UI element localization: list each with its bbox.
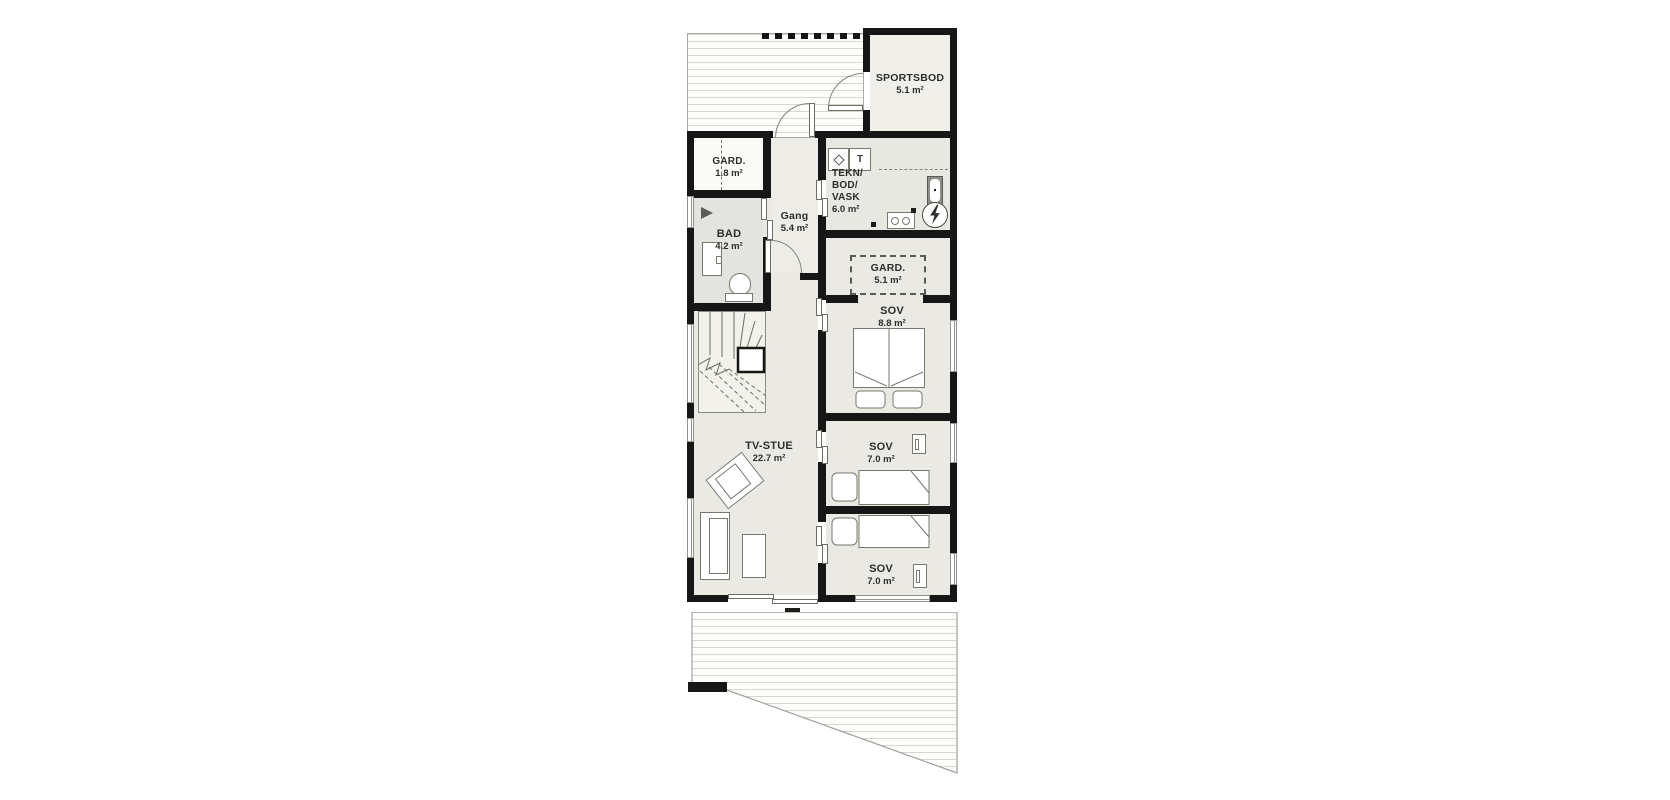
wall — [950, 463, 957, 553]
window — [687, 418, 694, 442]
toilet-icon — [729, 273, 751, 295]
wall — [818, 462, 826, 522]
sofa-icon — [700, 512, 730, 580]
window — [855, 595, 930, 602]
wall — [863, 28, 957, 35]
window — [950, 423, 957, 463]
wall — [818, 595, 855, 602]
room-label-sov-2: SOV 7.0 m² — [836, 563, 926, 588]
wall — [950, 372, 957, 423]
staircase — [698, 311, 766, 413]
dryer-label: T — [857, 154, 863, 165]
wall — [863, 110, 870, 137]
room-label-sov-1: SOV 7.0 m² — [836, 441, 926, 466]
wall — [687, 303, 771, 311]
electrical-panel-icon — [922, 202, 948, 228]
sliding-door-panel — [822, 446, 828, 464]
sliding-door-panel — [816, 526, 822, 546]
room-label-gard-entry: GARD. 1.8 m² — [695, 156, 763, 179]
coffee-table-icon — [742, 534, 766, 578]
floor-drain — [871, 222, 876, 227]
sliding-door-panel — [816, 180, 822, 200]
patio-sliding-door-panel — [772, 599, 818, 604]
wall — [800, 273, 818, 280]
deck-wall-stub — [688, 682, 727, 692]
wall — [863, 28, 870, 72]
wall — [818, 215, 826, 300]
wall — [687, 131, 694, 196]
sliding-door-panel — [761, 198, 767, 220]
floor-plan-canvas: T — [0, 0, 1670, 800]
window — [687, 498, 694, 558]
single-bed-icon — [830, 470, 930, 505]
patio-sliding-door-panel — [728, 594, 774, 599]
sliding-door-panel — [822, 198, 828, 217]
room-label-tv-stue: TV-STUE 22.7 m² — [719, 440, 819, 465]
window — [687, 196, 694, 228]
wall — [826, 295, 858, 303]
wall — [950, 585, 957, 602]
wall — [687, 442, 694, 498]
room-label-bad: BAD 4.2 m² — [695, 228, 763, 253]
wall — [763, 138, 771, 198]
pergola-dashed-marker — [762, 33, 864, 39]
window — [950, 553, 957, 585]
wall — [815, 131, 957, 138]
room-label-tekn: TEKN/ BOD/ VASK 6.0 m² — [832, 168, 912, 215]
wall — [687, 558, 694, 602]
hall-door-leaf — [765, 240, 771, 273]
wall — [687, 131, 773, 138]
door-threshold-marker — [785, 608, 800, 612]
room-label-sportsbod: SPORTSBOD 5.1 m² — [870, 72, 950, 96]
room-label-gang: Gang 5.4 m² — [771, 210, 818, 234]
single-bed-icon — [830, 515, 930, 548]
floor-plan: T — [687, 28, 963, 800]
wall — [818, 563, 826, 595]
wall — [687, 403, 694, 418]
wall — [818, 230, 950, 238]
wall — [950, 28, 957, 320]
entry-door-leaf — [809, 103, 815, 137]
room-label-gard-sov: GARD. 5.1 m² — [850, 262, 926, 286]
toilet-tank — [725, 293, 753, 302]
window — [950, 320, 957, 372]
stair-core — [738, 348, 764, 372]
wall — [694, 190, 771, 198]
water-heater-icon — [927, 176, 943, 205]
double-bed-icon — [853, 328, 925, 412]
sportsbod-door-leaf — [828, 105, 863, 111]
sliding-door-panel — [822, 314, 828, 332]
deck-bottom — [687, 612, 959, 800]
wall — [826, 506, 950, 514]
room-label-sov-double: SOV 8.8 m² — [844, 305, 940, 330]
window — [687, 324, 694, 403]
wall — [826, 413, 950, 421]
sliding-door-panel — [822, 544, 828, 564]
wall — [818, 330, 826, 432]
wall — [818, 138, 826, 180]
wall — [923, 295, 950, 303]
shower-icon — [700, 206, 714, 220]
